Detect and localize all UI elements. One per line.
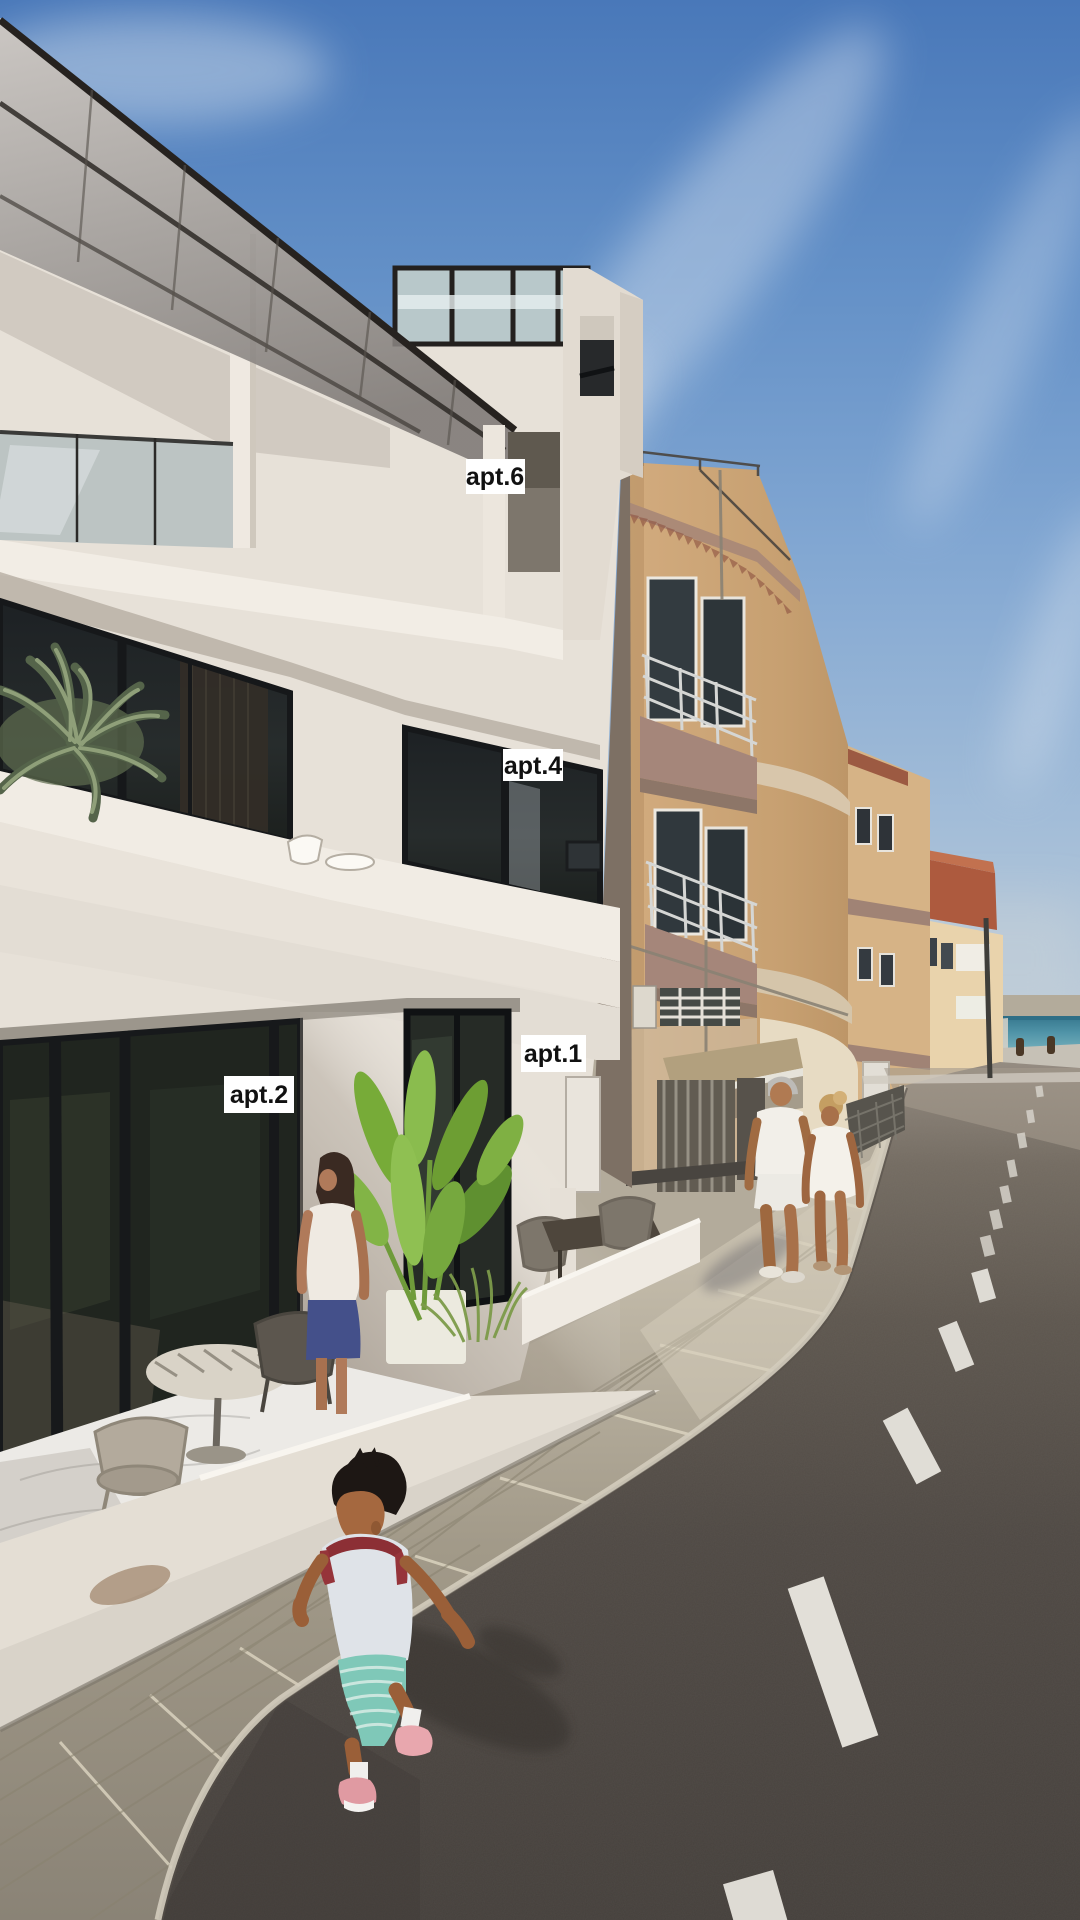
- svg-text:apt.1: apt.1: [524, 1040, 582, 1068]
- svg-text:apt.2: apt.2: [230, 1081, 288, 1109]
- svg-text:apt.6: apt.6: [466, 463, 524, 491]
- svg-text:apt.4: apt.4: [504, 752, 562, 780]
